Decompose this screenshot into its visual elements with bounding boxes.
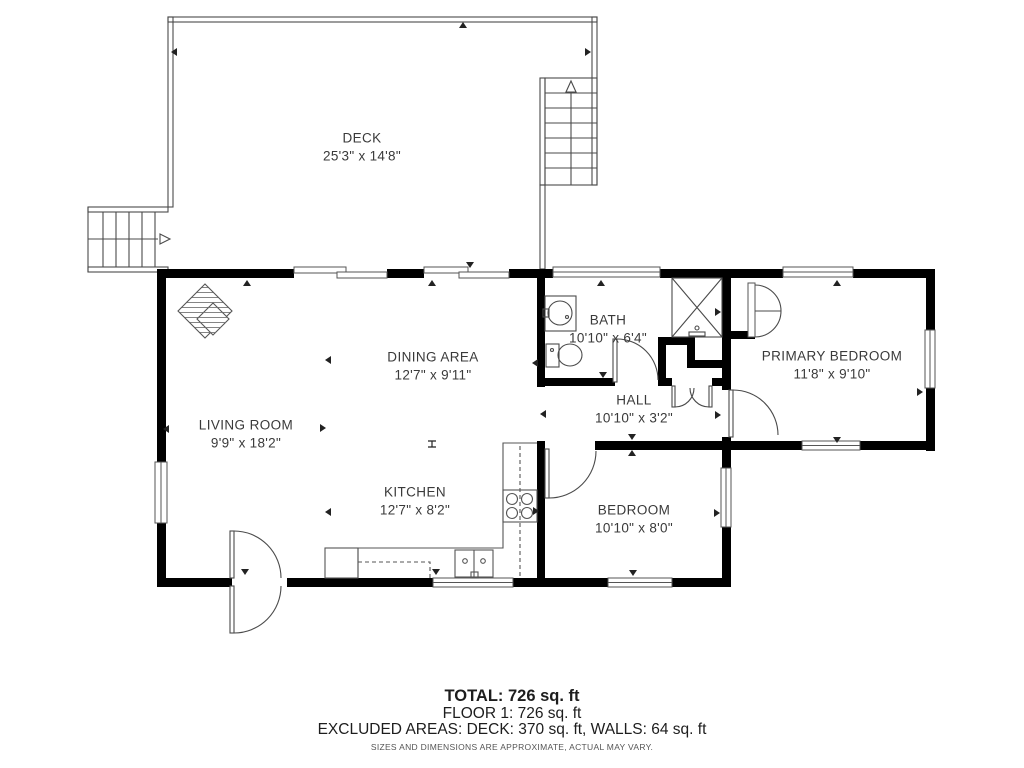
toilet (546, 344, 582, 367)
excluded-areas-text: EXCLUDED AREAS: DECK: 370 sq. ft, WALLS:… (0, 721, 1024, 739)
kitchen-bottom-window (433, 578, 513, 587)
deck-staircase-right (540, 78, 597, 185)
hall-closet-bifold-doors (672, 386, 712, 407)
bedroom-right-window (721, 468, 731, 527)
stairs-left-bottom-rail (88, 267, 168, 272)
deck-inner-rail (540, 185, 545, 269)
disclaimer-text: SIZES AND DIMENSIONS ARE APPROXIMATE, AC… (0, 742, 1024, 752)
slider-door-1 (294, 267, 387, 278)
bath-fixtures (543, 278, 722, 367)
deck-left-rail (168, 17, 173, 207)
bath-window (553, 267, 660, 277)
bedroom-door (545, 449, 596, 498)
shower (672, 278, 722, 337)
deck-top-rail (168, 17, 597, 22)
kitchen-counter (358, 443, 537, 578)
stairs-up-arrow-icon (566, 81, 576, 92)
i-beam-marker (428, 441, 436, 447)
cabinet-dashed-line (358, 562, 430, 578)
living-left-window (155, 462, 167, 523)
primary-right-window (925, 330, 935, 388)
kitchen-sink (455, 550, 493, 578)
entry-door-double-swing (230, 531, 281, 633)
stairs-left-top-rail (88, 207, 168, 212)
deck-outline (168, 17, 597, 269)
deck-right-rail (592, 17, 597, 185)
living-room-rug (178, 284, 232, 338)
primary-closet-double-doors (755, 285, 781, 337)
deck-staircase-left (88, 207, 170, 272)
bedroom-bottom-window (608, 578, 672, 587)
floor-plan-page: DECK 25'3" x 14'8" LIVING ROOM 9'9" x 18… (0, 0, 1024, 768)
primary-bedroom-door (729, 390, 778, 437)
bath-door (613, 339, 658, 382)
floor-plan-drawing (0, 0, 1024, 768)
stairs-right-rail (540, 78, 545, 185)
primary-bottom-window (802, 441, 860, 450)
refrigerator (325, 548, 358, 578)
closet-opening (748, 283, 755, 337)
bath-vanity-sink (543, 296, 576, 331)
primary-top-window (783, 267, 853, 277)
slider-door-2 (424, 267, 509, 278)
stairs-left-arrow-icon (160, 234, 170, 244)
total-area-text: TOTAL: 726 sq. ft (0, 687, 1024, 706)
kitchen-fixtures (325, 443, 537, 578)
